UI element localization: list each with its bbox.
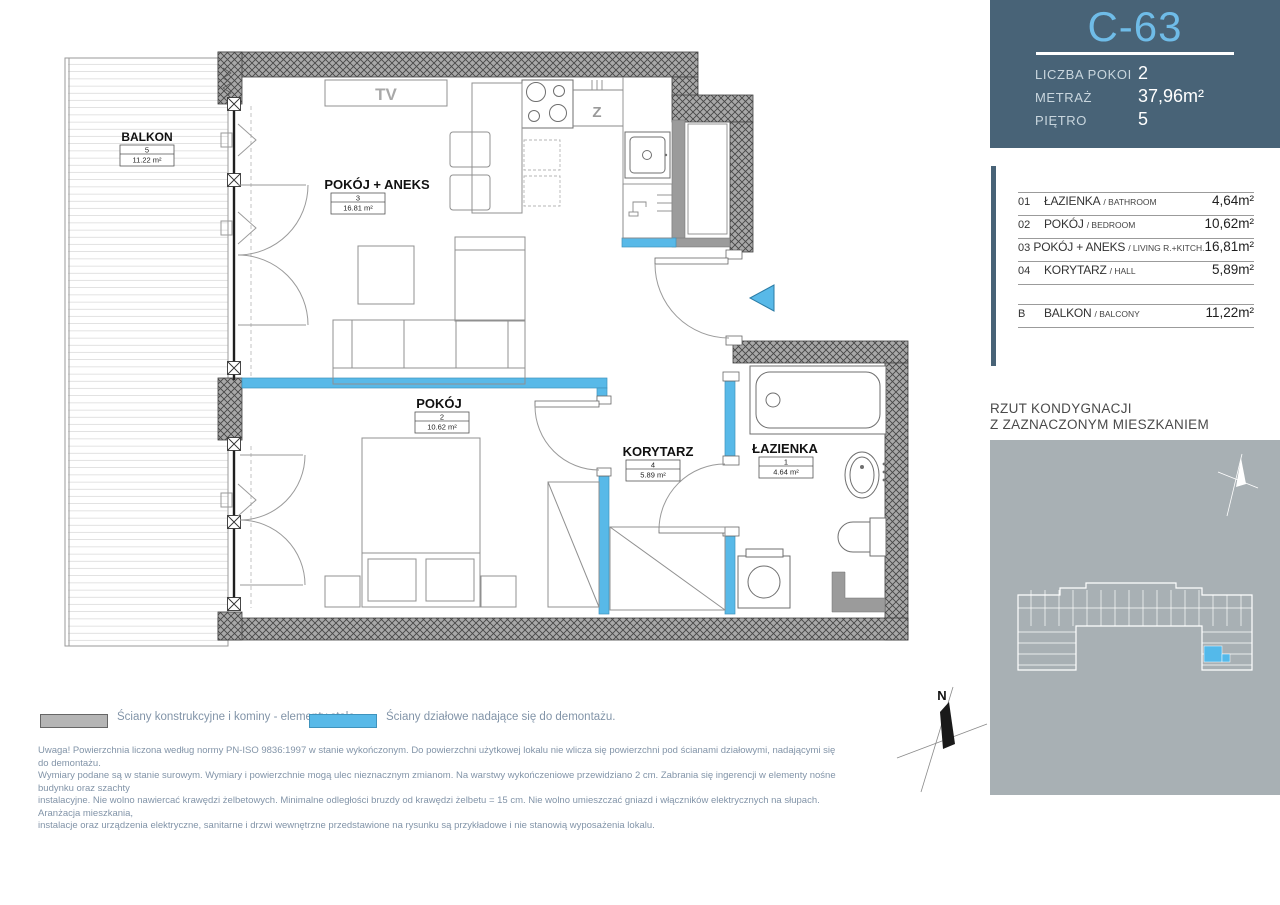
unit-card-row: METRAŻ 37,96m² — [1035, 86, 1280, 109]
hall-wardrobe — [610, 527, 725, 610]
area-label: METRAŻ — [1035, 90, 1138, 105]
disclaimer-line: instalacyjne. Nie wolno nawiercać krawęd… — [38, 795, 838, 820]
sofa — [333, 237, 525, 384]
svg-text:BALKON: BALKON — [121, 130, 172, 144]
entrance-marker-icon — [750, 285, 774, 311]
row-number: 03 — [1018, 242, 1033, 254]
rooms-count-label: LICZBA POKOI — [1035, 67, 1138, 82]
table-row: 01 ŁAZIENKA / BATHROOM 4,64m² — [1018, 192, 1254, 216]
row-name-en: / LIVING R.+KITCH. — [1128, 243, 1204, 253]
balcony-label: BALKON 5 11.22 m² — [120, 130, 174, 166]
svg-text:4.64 m²: 4.64 m² — [773, 468, 799, 477]
table-row: 03 POKÓJ + ANEKS / LIVING R.+KITCH. 16,8… — [1018, 239, 1254, 262]
sink-symbol: Z — [592, 104, 601, 121]
bedroom-label: POKÓJ 2 10.62 m² — [415, 396, 469, 433]
unit-id: C-63 — [1036, 4, 1234, 50]
washbasin — [845, 452, 885, 498]
north-label: N — [937, 688, 946, 703]
row-number: B — [1018, 308, 1044, 320]
disclaimer-line: instalacje oraz urządzenia elektryczne, … — [38, 820, 838, 833]
row-number: 02 — [1018, 219, 1044, 231]
floor-value: 5 — [1138, 109, 1148, 130]
disclaimer-line: Wymiary podane są w stanie surowym. Wymi… — [38, 770, 838, 795]
accent-bar — [991, 166, 996, 366]
floor-overview-title: RZUT KONDYGNACJI Z ZAZNACZONYM MIESZKANI… — [990, 401, 1280, 433]
svg-text:2: 2 — [440, 413, 444, 422]
svg-text:5.89 m²: 5.89 m² — [640, 471, 666, 480]
rooms-count-value: 2 — [1138, 63, 1148, 84]
svg-text:10.62 m²: 10.62 m² — [427, 423, 457, 432]
table-row: 04 KORYTARZ / HALL 5,89m² — [1018, 262, 1254, 285]
bed — [325, 438, 516, 607]
unit-id-header: C-63 — [1036, 4, 1234, 55]
bathtub — [750, 366, 886, 434]
row-name: BALKON — [1044, 306, 1092, 320]
coffee-table — [358, 246, 414, 304]
floorplan-sheet: Z TV — [0, 0, 1280, 905]
row-area: 10,62m² — [1204, 216, 1254, 231]
table-row-balcony: B BALKON / BALCONY 11,22m² — [1018, 304, 1254, 328]
north-compass: N — [897, 687, 987, 792]
row-area: 4,64m² — [1212, 193, 1254, 208]
hall-label: KORYTARZ 4 5.89 m² — [623, 444, 694, 481]
svg-text:POKÓJ + ANEKS: POKÓJ + ANEKS — [324, 177, 430, 192]
unit-card-row: LICZBA POKOI 2 — [1035, 63, 1280, 86]
bathroom-label: ŁAZIENKA 1 4.64 m² — [752, 441, 818, 478]
disclaimer-line: Uwaga! Powierzchnia liczona według normy… — [38, 745, 838, 770]
row-number: 04 — [1018, 265, 1044, 277]
room-area-table: 01 ŁAZIENKA / BATHROOM 4,64m² 02 POKÓJ /… — [1018, 192, 1254, 328]
structural-walls — [218, 52, 908, 640]
overview-title-line2: Z ZAZNACZONYM MIESZKANIEM — [990, 417, 1280, 433]
legend-partition-label: Ściany działowe nadające się do demontaż… — [386, 711, 616, 723]
row-name: ŁAZIENKA — [1044, 194, 1100, 208]
tv-cabinet: TV — [325, 80, 447, 106]
bedroom-wardrobe — [548, 482, 599, 607]
row-name: POKÓJ + ANEKS — [1033, 240, 1125, 254]
svg-text:5: 5 — [145, 146, 149, 155]
building-minimap — [990, 440, 1280, 795]
area-value: 37,96m² — [1138, 86, 1204, 107]
row-name-en: / BALCONY — [1095, 309, 1140, 319]
row-area: 11,22m² — [1205, 305, 1254, 320]
disclaimer-text: Uwaga! Powierzchnia liczona według normy… — [38, 745, 838, 833]
row-name: POKÓJ — [1044, 217, 1084, 231]
unit-card-row: PIĘTRO 5 — [1035, 109, 1280, 132]
svg-text:1: 1 — [784, 458, 788, 467]
washing-machine — [738, 549, 790, 608]
door-jambs — [597, 250, 742, 536]
row-name: KORYTARZ — [1044, 263, 1107, 277]
svg-text:TV: TV — [375, 85, 397, 104]
unit-card: C-63 LICZBA POKOI 2 METRAŻ 37,96m² PIĘTR… — [990, 0, 1280, 148]
row-name-en: / BATHROOM — [1103, 197, 1156, 207]
living-room-label: POKÓJ + ANEKS 3 16.81 m² — [324, 177, 430, 214]
svg-text:ŁAZIENKA: ŁAZIENKA — [752, 441, 818, 456]
unit-card-rows: LICZBA POKOI 2 METRAŻ 37,96m² PIĘTRO 5 — [1035, 63, 1280, 132]
toilet — [838, 518, 886, 556]
svg-text:11.22 m²: 11.22 m² — [132, 156, 162, 165]
table-row: 02 POKÓJ / BEDROOM 10,62m² — [1018, 216, 1254, 239]
row-name-en: / BEDROOM — [1087, 220, 1136, 230]
floor-label: PIĘTRO — [1035, 113, 1138, 128]
svg-text:KORYTARZ: KORYTARZ — [623, 444, 694, 459]
legend-partition-swatch — [309, 714, 377, 728]
overview-title-line1: RZUT KONDYGNACJI — [990, 401, 1280, 417]
row-number: 01 — [1018, 196, 1044, 208]
row-area: 5,89m² — [1212, 262, 1254, 277]
row-area: 16,81m² — [1204, 239, 1254, 254]
svg-text:POKÓJ: POKÓJ — [416, 396, 462, 411]
svg-text:3: 3 — [356, 194, 360, 203]
svg-text:16.81 m²: 16.81 m² — [343, 204, 373, 213]
row-name-en: / HALL — [1110, 266, 1136, 276]
svg-text:4: 4 — [651, 461, 655, 470]
legend-structural-swatch — [40, 714, 108, 728]
